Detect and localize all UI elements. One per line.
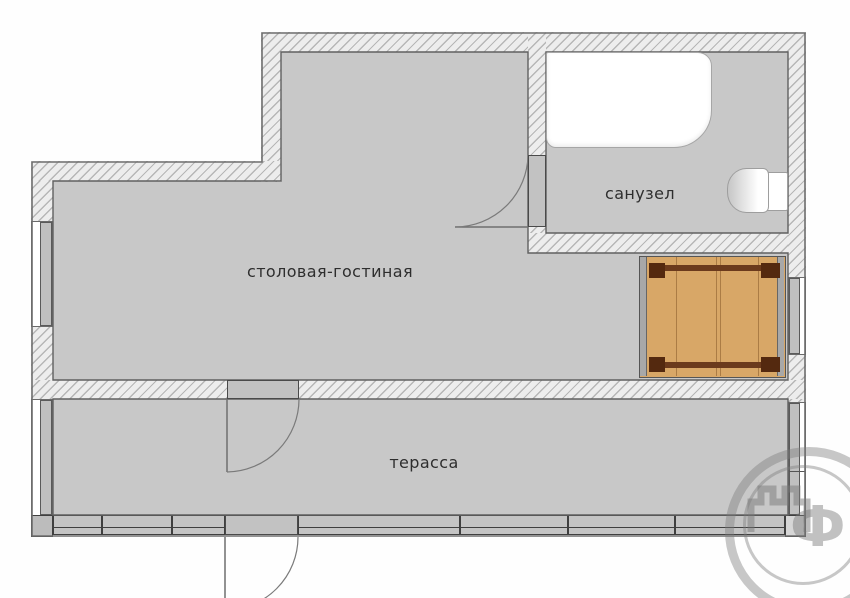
table-rail: [664, 362, 763, 368]
wood-table: [639, 256, 786, 378]
wall-right: [788, 32, 806, 277]
wall-step: [31, 161, 281, 181]
table-leg: [649, 357, 665, 372]
wall-left: [31, 181, 53, 221]
terrace-door: [227, 380, 299, 399]
bathtub: [546, 52, 712, 148]
bathroom-door: [528, 155, 546, 227]
wall-upper-left: [261, 32, 281, 182]
glazing-panel: [298, 515, 460, 535]
bathroom-label: санузел: [592, 184, 688, 203]
wall-bathroom-divider: [528, 32, 546, 155]
table-leg: [761, 357, 780, 372]
glazing-panel: [102, 515, 172, 535]
window-left: [31, 221, 53, 327]
terrace-exit-door-panel: [225, 515, 298, 535]
glazing-panel: [568, 515, 675, 535]
glazing-panel: [172, 515, 225, 535]
toilet-tank: [766, 172, 788, 211]
table-leg: [649, 263, 665, 278]
plank-line: [758, 257, 759, 376]
terrace-glazing-left: [31, 399, 53, 516]
glazing-corner: [31, 515, 53, 537]
glazing-panel: [53, 515, 102, 535]
wall-left: [31, 327, 53, 380]
watermark-letter: Ф: [790, 495, 846, 560]
terrace-label: терасса: [376, 453, 472, 472]
table-rail: [664, 265, 763, 271]
plank-line: [716, 257, 717, 376]
terrace-glazing-bottom: [31, 515, 806, 537]
table-leg: [761, 263, 780, 278]
wall-terrace-divider: [31, 380, 227, 399]
toilet-bowl: [727, 168, 769, 213]
living-room-label: столовая-гостиная: [240, 262, 420, 281]
floor-plan: столовая-гостиная санузел терасса Ф: [0, 0, 850, 598]
glazing-panel: [460, 515, 568, 535]
wall-bathroom-bottom: [528, 233, 806, 253]
wall-terrace-divider: [299, 380, 806, 399]
table-edge: [640, 257, 647, 376]
plank-line: [720, 257, 721, 376]
living-room-floor: [281, 52, 528, 380]
window-right: [788, 277, 806, 355]
plank-line: [676, 257, 677, 376]
